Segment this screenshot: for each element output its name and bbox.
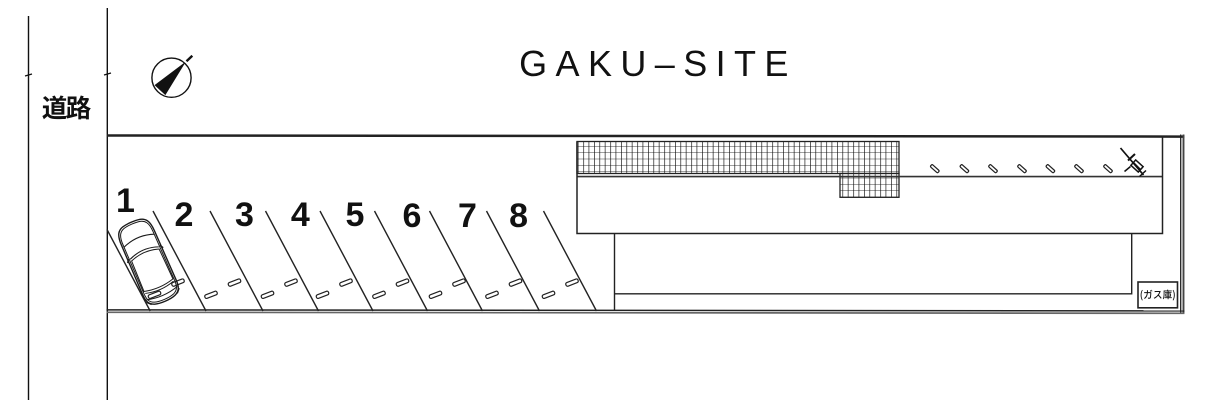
svg-text:3: 3 xyxy=(235,196,254,234)
svg-text:7: 7 xyxy=(458,197,477,235)
svg-text:4: 4 xyxy=(291,196,310,234)
svg-text:1: 1 xyxy=(116,182,135,220)
svg-text:5: 5 xyxy=(346,196,365,234)
svg-text:8: 8 xyxy=(509,197,528,235)
svg-text:GAKU–SITE: GAKU–SITE xyxy=(519,43,797,84)
svg-text:2: 2 xyxy=(175,196,194,234)
svg-text:6: 6 xyxy=(403,197,422,235)
